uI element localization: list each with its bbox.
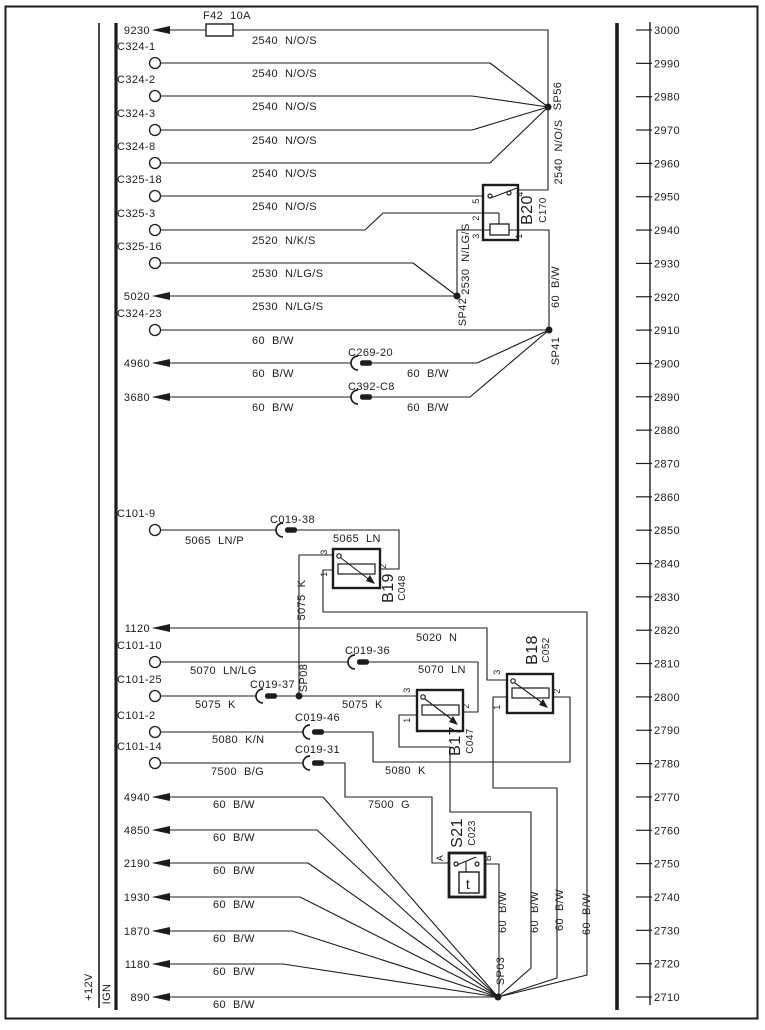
label-60-b-w: 60 B/W (213, 865, 255, 877)
label-sp42: SP42 (457, 298, 469, 327)
terminal-circle-c324-2 (150, 91, 161, 102)
label-5075-k: 5075 K (195, 699, 236, 711)
label-c019-38: C019-38 (270, 514, 315, 526)
label-c048: C048 (397, 575, 408, 601)
label-c269-20: C269-20 (348, 347, 393, 359)
ruler-label-2820: 2820 (654, 625, 680, 637)
label-+12v: +12V (83, 973, 95, 1001)
splice-sp41 (546, 327, 553, 334)
ruler-label-2950: 2950 (654, 192, 680, 204)
ruler-label-2890: 2890 (654, 392, 680, 404)
thermal-switch-s21-circle2 (475, 862, 479, 866)
label-3680: 3680 (124, 392, 150, 404)
label-4960: 4960 (124, 358, 150, 370)
label-1: 1 (514, 233, 524, 238)
label-c101-2: C101-2 (117, 710, 155, 722)
ruler-label-2780: 2780 (654, 759, 680, 771)
label-2540-n-o-s: 2540 N/O/S (252, 201, 317, 213)
label-s21: S21 (449, 818, 466, 848)
label-60-b-w: 60 B/W (213, 966, 255, 978)
label-60-b-w: 60 B/W (213, 933, 255, 945)
sensor-b19-circle1 (337, 554, 341, 558)
label-2540-n-o-s: 2540 N/O/S (252, 68, 317, 80)
splice-sp08 (296, 693, 303, 700)
fuse-f42-rect0 (206, 24, 233, 36)
ruler-label-2840: 2840 (654, 559, 680, 571)
thermal-switch-s21-text6: t (466, 876, 470, 892)
label-c101-9: C101-9 (117, 508, 155, 520)
label-f42-10a: F42 10A (203, 10, 251, 22)
label-60-b-w: 60 B/W (252, 335, 294, 347)
terminal-circle-c101-2 (150, 727, 161, 738)
ruler-label-2760: 2760 (654, 825, 680, 837)
terminal-circle-c101-14 (150, 758, 161, 769)
label-890: 890 (130, 992, 150, 1004)
label-c324-23: C324-23 (117, 308, 162, 320)
label-c392-c8: C392-C8 (348, 381, 395, 393)
ruler-label-2990: 2990 (654, 58, 680, 70)
ruler-label-2860: 2860 (654, 492, 680, 504)
label-b20: B20 (519, 195, 536, 225)
sensor-b18-rect2 (512, 688, 549, 698)
label-c170: C170 (538, 197, 549, 223)
ruler-label-2770: 2770 (654, 792, 680, 804)
ruler-label-2730: 2730 (654, 925, 680, 937)
label-3: 3 (402, 687, 412, 692)
label-c101-14: C101-14 (117, 741, 162, 753)
terminal-circle-c324-3 (150, 125, 161, 136)
label-5070-ln: 5070 LN (418, 664, 466, 676)
label-c023: C023 (467, 820, 478, 846)
ruler-label-2980: 2980 (654, 92, 680, 104)
label-2530-n-lg-s: 2530 N/LG/S (252, 301, 323, 313)
label-5080-k-n: 5080 K/N (212, 734, 265, 746)
label-c324-1: C324-1 (117, 41, 155, 53)
label-2190: 2190 (124, 858, 150, 870)
ruler-label-2790: 2790 (654, 725, 680, 737)
label-2540-n-o-s: 2540 N/O/S (252, 135, 317, 147)
label-1930: 1930 (124, 892, 150, 904)
ruler-label-2830: 2830 (654, 592, 680, 604)
label-c101-25: C101-25 (117, 674, 162, 686)
label-c019-36: C019-36 (345, 645, 390, 657)
label-3: 3 (319, 549, 329, 554)
ruler-label-2740: 2740 (654, 892, 680, 904)
splice-sp56 (545, 104, 552, 111)
label-2: 2 (552, 688, 562, 693)
ruler-label-2880: 2880 (654, 425, 680, 437)
label-5070-ln-lg: 5070 LN/LG (190, 665, 257, 677)
label-c019-37: C019-37 (250, 679, 295, 691)
label-5065-ln: 5065 LN (333, 533, 381, 545)
label-b18: B18 (524, 635, 541, 665)
label-60-b-w: 60 B/W (407, 368, 449, 380)
label-60-b-w: 60 B/W (252, 402, 294, 414)
label-c052: C052 (541, 637, 552, 663)
label-c019-46: C019-46 (295, 712, 340, 724)
label-c325-18: C325-18 (117, 174, 162, 186)
sensor-b19-rect2 (338, 564, 375, 574)
label-c047: C047 (465, 728, 476, 754)
label-5020-n: 5020 N (416, 632, 457, 644)
label-1120: 1120 (125, 623, 150, 635)
label-5: 5 (471, 198, 481, 203)
label-5080-k: 5080 K (385, 765, 426, 777)
label-2: 2 (461, 703, 471, 708)
label-60-b-w: 60 B/W (213, 799, 255, 811)
label-2540-n-o-s: 2540 N/O/S (252, 101, 317, 113)
label-5075-k: 5075 K (296, 579, 308, 620)
terminal-circle-c101-10 (150, 657, 161, 668)
terminal-circle-c325-3 (150, 225, 161, 236)
wiring-schematic: t300029902980297029602950294029302920291… (0, 0, 765, 1030)
label-5020: 5020 (124, 291, 150, 303)
label-4940: 4940 (124, 792, 150, 804)
label-2: 2 (471, 215, 481, 220)
label-c101-10: C101-10 (117, 640, 162, 652)
label-c019-31: C019-31 (295, 744, 340, 756)
ruler-label-2800: 2800 (654, 692, 680, 704)
ruler-label-2810: 2810 (654, 659, 680, 671)
label-1: 1 (492, 704, 502, 709)
ruler-label-2970: 2970 (654, 125, 680, 137)
ruler-label-3000: 3000 (654, 25, 680, 37)
label-b17: B17 (447, 726, 464, 756)
relay-b20-rect7 (490, 224, 509, 235)
relay-b20-circle1 (488, 194, 492, 198)
label-60-b-w: 60 B/W (213, 832, 255, 844)
label-4850: 4850 (124, 825, 150, 837)
label-2530-n-lg-s: 2530 N/LG/S (252, 268, 323, 280)
label-2: 2 (378, 563, 388, 568)
inline-connector-pin-c019-46 (312, 729, 324, 735)
ruler-label-2910: 2910 (654, 325, 680, 337)
label-60-b-w: 60 B/W (529, 891, 541, 933)
label-sp08: SP08 (298, 664, 310, 693)
sensor-b17-circle1 (421, 695, 425, 699)
label-b: B (483, 855, 493, 861)
label-2540-n-o-s: 2540 N/O/S (553, 120, 565, 185)
label-3: 3 (471, 233, 481, 238)
label-c324-2: C324-2 (117, 74, 155, 86)
label-sp41: SP41 (550, 337, 562, 366)
terminal-circle-c325-18 (150, 191, 161, 202)
label-c325-3: C325-3 (117, 208, 155, 220)
label-sp03: SP03 (495, 957, 507, 986)
inline-connector-pin-c392-c8 (360, 394, 372, 400)
ruler-label-2930: 2930 (654, 258, 680, 270)
label-1870: 1870 (124, 926, 150, 938)
sensor-b17-rect2 (422, 705, 459, 715)
label-5065-ln-p: 5065 LN/P (185, 535, 244, 547)
ruler-label-2870: 2870 (654, 458, 680, 470)
ruler-label-2940: 2940 (654, 225, 680, 237)
label-2540-n-o-s: 2540 N/O/S (252, 35, 317, 47)
inline-connector-pin-c019-36 (357, 659, 369, 665)
label-5075-k: 5075 K (342, 699, 383, 711)
label-60-b-w: 60 B/W (581, 893, 593, 935)
label-1180: 1180 (125, 959, 150, 971)
label-3: 3 (492, 669, 502, 674)
label-c324-8: C324-8 (117, 141, 155, 153)
label-1: 1 (402, 717, 412, 722)
inline-connector-pin-c019-38 (285, 527, 297, 533)
terminal-circle-c325-16 (150, 258, 161, 269)
wiring-diagram-page: t300029902980297029602950294029302920291… (0, 0, 765, 1030)
terminal-circle-c324-23 (150, 325, 161, 336)
inline-connector-pin-c019-31 (312, 760, 324, 766)
terminal-circle-c324-1 (150, 58, 161, 69)
inline-connector-pin-c019-37 (265, 693, 277, 699)
label-2540-n-o-s: 2540 N/O/S (252, 168, 317, 180)
inline-connector-pin-c269-20 (360, 360, 372, 366)
label-60-b-w: 60 B/W (252, 368, 294, 380)
label-4: 4 (515, 191, 525, 196)
ruler-label-2720: 2720 (654, 959, 680, 971)
label-7500-b-g: 7500 B/G (211, 766, 264, 778)
label-ign: IGN (101, 984, 113, 1005)
label-1: 1 (319, 571, 329, 576)
label-60-b-w: 60 B/W (497, 891, 509, 933)
ruler-label-2710: 2710 (654, 992, 680, 1004)
sensor-b18-circle1 (511, 679, 515, 683)
terminal-circle-c324-8 (150, 158, 161, 169)
ruler-label-2960: 2960 (654, 158, 680, 170)
label-b19: B19 (380, 573, 397, 603)
label-7500-g: 7500 G (368, 799, 410, 811)
label-c324-3: C324-3 (117, 108, 155, 120)
label-60-b-w: 60 B/W (213, 999, 255, 1011)
ruler-label-2920: 2920 (654, 292, 680, 304)
label-2520-n-k-s: 2520 N/K/S (252, 235, 316, 247)
ruler-label-2900: 2900 (654, 358, 680, 370)
terminal-circle-c101-9 (150, 525, 161, 536)
label-9230: 9230 (124, 25, 150, 37)
label-60-b-w: 60 B/W (213, 899, 255, 911)
label-c325-16: C325-16 (117, 241, 162, 253)
label-sp56: SP56 (552, 82, 564, 111)
terminal-circle-c101-25 (150, 691, 161, 702)
label-a: A (435, 855, 445, 861)
splice-sp03 (495, 994, 502, 1001)
ruler-label-2850: 2850 (654, 525, 680, 537)
label-60-b-w: 60 B/W (554, 889, 566, 931)
label-60-b-w: 60 B/W (407, 402, 449, 414)
label-60-b-w: 60 B/W (550, 266, 562, 308)
ruler-label-2750: 2750 (654, 859, 680, 871)
